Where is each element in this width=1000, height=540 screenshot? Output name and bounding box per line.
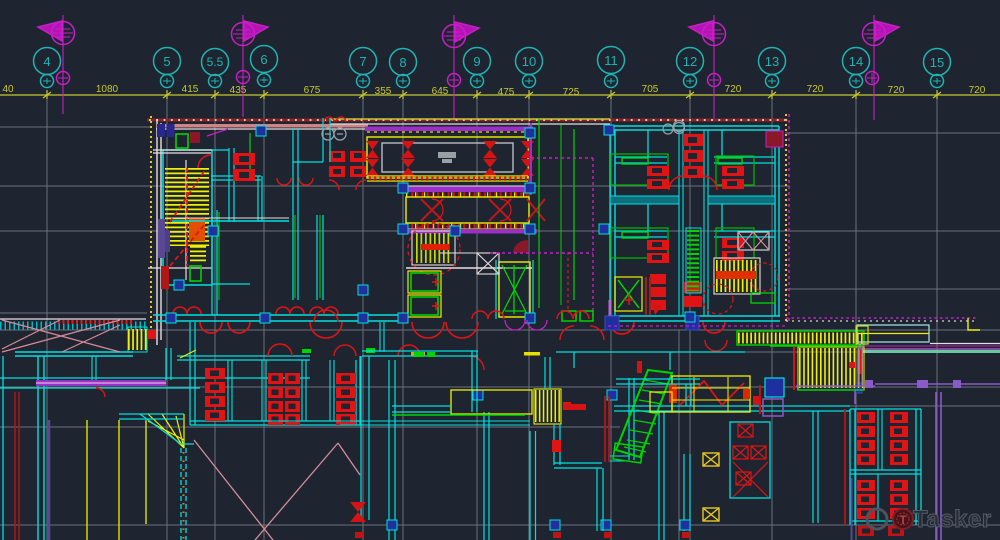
svg-text:720: 720 bbox=[969, 85, 986, 96]
svg-text:415: 415 bbox=[182, 84, 199, 95]
svg-text:5: 5 bbox=[163, 54, 170, 69]
svg-text:14: 14 bbox=[849, 54, 863, 69]
svg-text:8: 8 bbox=[399, 55, 406, 70]
svg-text:645: 645 bbox=[432, 86, 449, 97]
svg-text:475: 475 bbox=[498, 87, 515, 98]
svg-text:355: 355 bbox=[375, 86, 392, 97]
svg-text:5.5: 5.5 bbox=[207, 55, 224, 69]
svg-text:11: 11 bbox=[604, 53, 618, 68]
svg-text:725: 725 bbox=[563, 87, 580, 98]
svg-text:T: T bbox=[899, 513, 907, 527]
svg-text:6: 6 bbox=[260, 52, 267, 67]
svg-text:435: 435 bbox=[230, 85, 247, 96]
svg-text:720: 720 bbox=[888, 85, 905, 96]
svg-text:7: 7 bbox=[359, 54, 366, 69]
svg-text:40: 40 bbox=[2, 84, 14, 95]
svg-text:720: 720 bbox=[807, 84, 824, 95]
svg-text:1080: 1080 bbox=[96, 84, 119, 95]
svg-text:Tasker: Tasker bbox=[913, 506, 992, 533]
svg-text:705: 705 bbox=[642, 84, 659, 95]
svg-text:720: 720 bbox=[725, 84, 742, 95]
svg-text:10: 10 bbox=[522, 54, 536, 69]
svg-text:15: 15 bbox=[930, 55, 944, 70]
svg-text:12: 12 bbox=[683, 54, 697, 69]
svg-text:675: 675 bbox=[304, 85, 321, 96]
svg-text:13: 13 bbox=[765, 54, 779, 69]
svg-text:4: 4 bbox=[43, 54, 50, 69]
svg-text:9: 9 bbox=[473, 54, 480, 69]
